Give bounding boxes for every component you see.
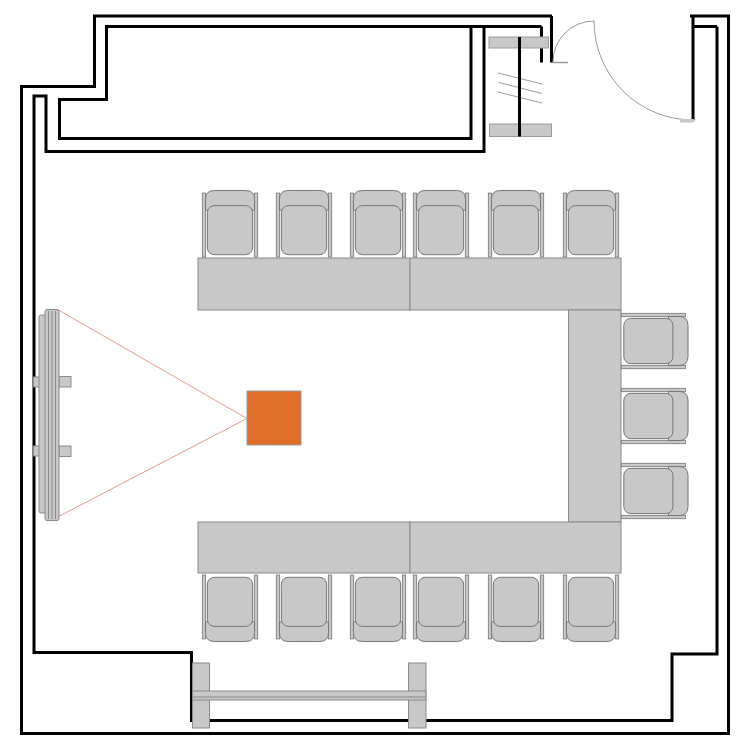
- table-bottom-left: [198, 522, 410, 573]
- chair-seat: [568, 577, 613, 626]
- chair-seat: [355, 206, 400, 255]
- chair-top-row: [202, 191, 257, 258]
- table-right: [569, 310, 622, 522]
- chair-right-column: [622, 463, 689, 518]
- chair-seat: [207, 206, 252, 255]
- chair-bottom-row: [488, 575, 543, 642]
- chair-bottom-row: [413, 575, 468, 642]
- chair-bottom-row: [350, 575, 405, 642]
- chair-seat: [624, 393, 673, 438]
- chair-seat: [418, 206, 463, 255]
- table-bottom-right: [410, 522, 621, 573]
- floor-plan-canvas: [0, 0, 750, 750]
- chair-bottom-row: [276, 575, 331, 642]
- chair-seat: [355, 577, 400, 626]
- chair-seat: [418, 577, 463, 626]
- chair-top-row: [276, 191, 331, 258]
- table-top-left: [198, 258, 410, 310]
- table-top-right: [410, 258, 621, 310]
- chair-seat: [207, 577, 252, 626]
- chair-seat: [281, 577, 326, 626]
- chair-top-row: [350, 191, 405, 258]
- floor-plan: [0, 0, 750, 750]
- projector: [247, 391, 301, 445]
- chair-seat: [281, 206, 326, 255]
- chair-right-column: [622, 388, 689, 443]
- railing-rail: [193, 691, 427, 700]
- chair-bottom-row: [563, 575, 618, 642]
- chair-seat: [493, 206, 538, 255]
- chair-top-row: [563, 191, 618, 258]
- door-stop: [680, 119, 694, 123]
- chair-seat: [568, 206, 613, 255]
- screen-bracket: [59, 446, 71, 457]
- chair-right-column: [622, 313, 689, 368]
- chair-seat: [624, 318, 673, 363]
- chair-seat: [624, 468, 673, 513]
- screen-bracket: [59, 377, 71, 388]
- chair-bottom-row: [202, 575, 257, 642]
- chair-seat: [493, 577, 538, 626]
- chair-top-row: [413, 191, 468, 258]
- chair-top-row: [488, 191, 543, 258]
